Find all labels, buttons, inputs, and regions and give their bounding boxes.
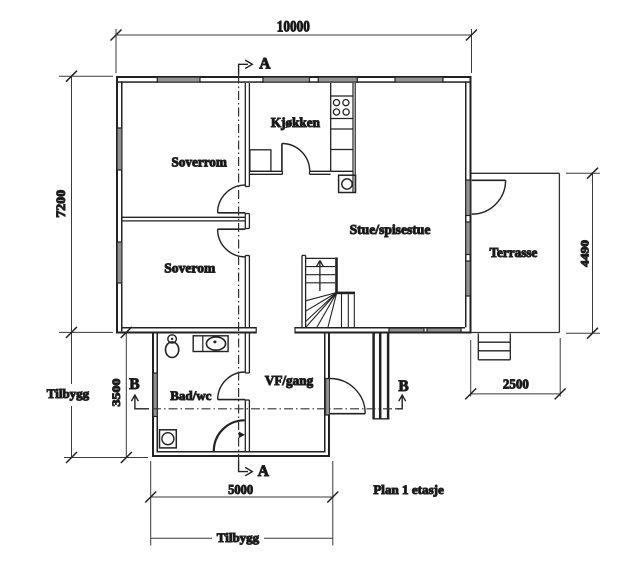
svg-text:Plan 1 etasje: Plan 1 etasje — [373, 482, 444, 497]
svg-text:2500: 2500 — [503, 378, 529, 393]
svg-text:7200: 7200 — [54, 190, 68, 218]
svg-text:3500: 3500 — [109, 379, 123, 407]
svg-text:Kjøkken: Kjøkken — [271, 115, 321, 130]
svg-text:Soverrom: Soverrom — [171, 154, 226, 169]
svg-text:Tilbygg: Tilbygg — [217, 530, 260, 545]
svg-text:Terrasse: Terrasse — [489, 245, 537, 260]
svg-text:5000: 5000 — [228, 482, 253, 497]
svg-text:Soverom: Soverom — [164, 260, 216, 275]
svg-text:B: B — [398, 378, 408, 395]
svg-text:10000: 10000 — [277, 19, 310, 36]
svg-text:VF/gang: VF/gang — [265, 373, 314, 388]
svg-text:Bad/wc: Bad/wc — [170, 388, 211, 403]
svg-text:B: B — [129, 376, 139, 393]
svg-text:A: A — [259, 55, 271, 72]
svg-text:Stue/spisestue: Stue/spisestue — [350, 222, 431, 237]
svg-text:4490: 4490 — [578, 240, 592, 267]
svg-text:Tilbygg: Tilbygg — [47, 386, 90, 401]
svg-text:A: A — [258, 463, 270, 480]
